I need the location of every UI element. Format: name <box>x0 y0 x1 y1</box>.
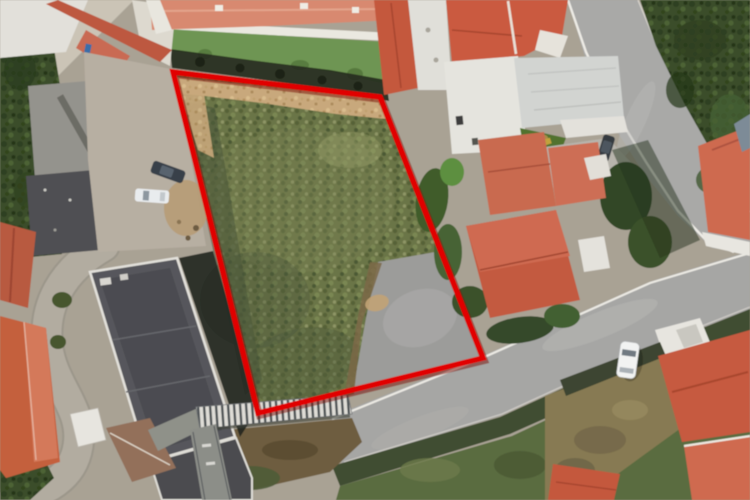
parked-car-white <box>135 188 170 203</box>
satellite-view <box>0 0 750 500</box>
roof-upper <box>478 132 556 215</box>
scene <box>0 0 750 500</box>
aerial-photo-canvas <box>0 0 750 500</box>
flat-dark-roof <box>26 170 100 256</box>
window-dark <box>456 116 464 126</box>
